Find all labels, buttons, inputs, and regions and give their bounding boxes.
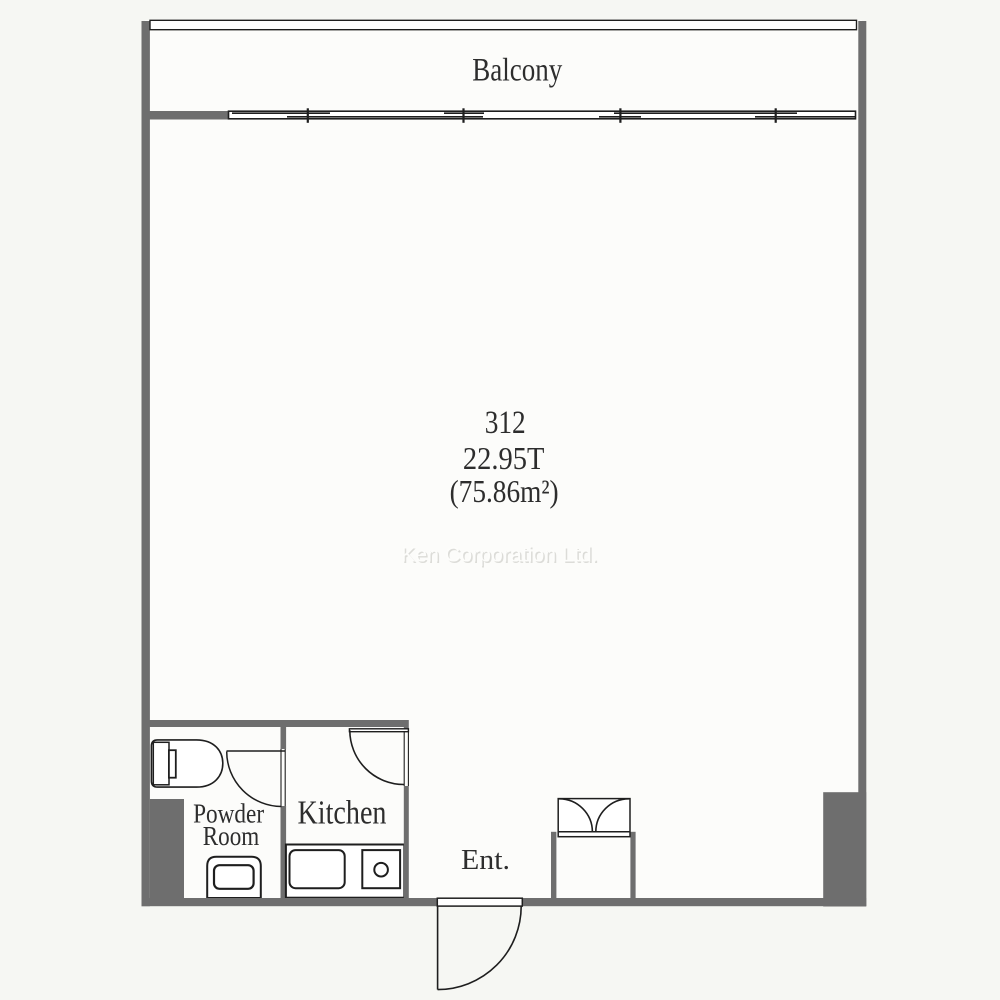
svg-text:22.95T: 22.95T bbox=[463, 440, 545, 476]
svg-text:Balcony: Balcony bbox=[472, 53, 562, 89]
svg-text:Kitchen: Kitchen bbox=[298, 795, 387, 832]
svg-text:Ken Corporation Ltd.: Ken Corporation Ltd. bbox=[401, 544, 598, 567]
svg-text:Room: Room bbox=[203, 821, 260, 851]
svg-text:312: 312 bbox=[485, 405, 526, 441]
svg-text:Ent.: Ent. bbox=[461, 845, 510, 876]
svg-text:(75.86m²): (75.86m²) bbox=[450, 473, 559, 509]
